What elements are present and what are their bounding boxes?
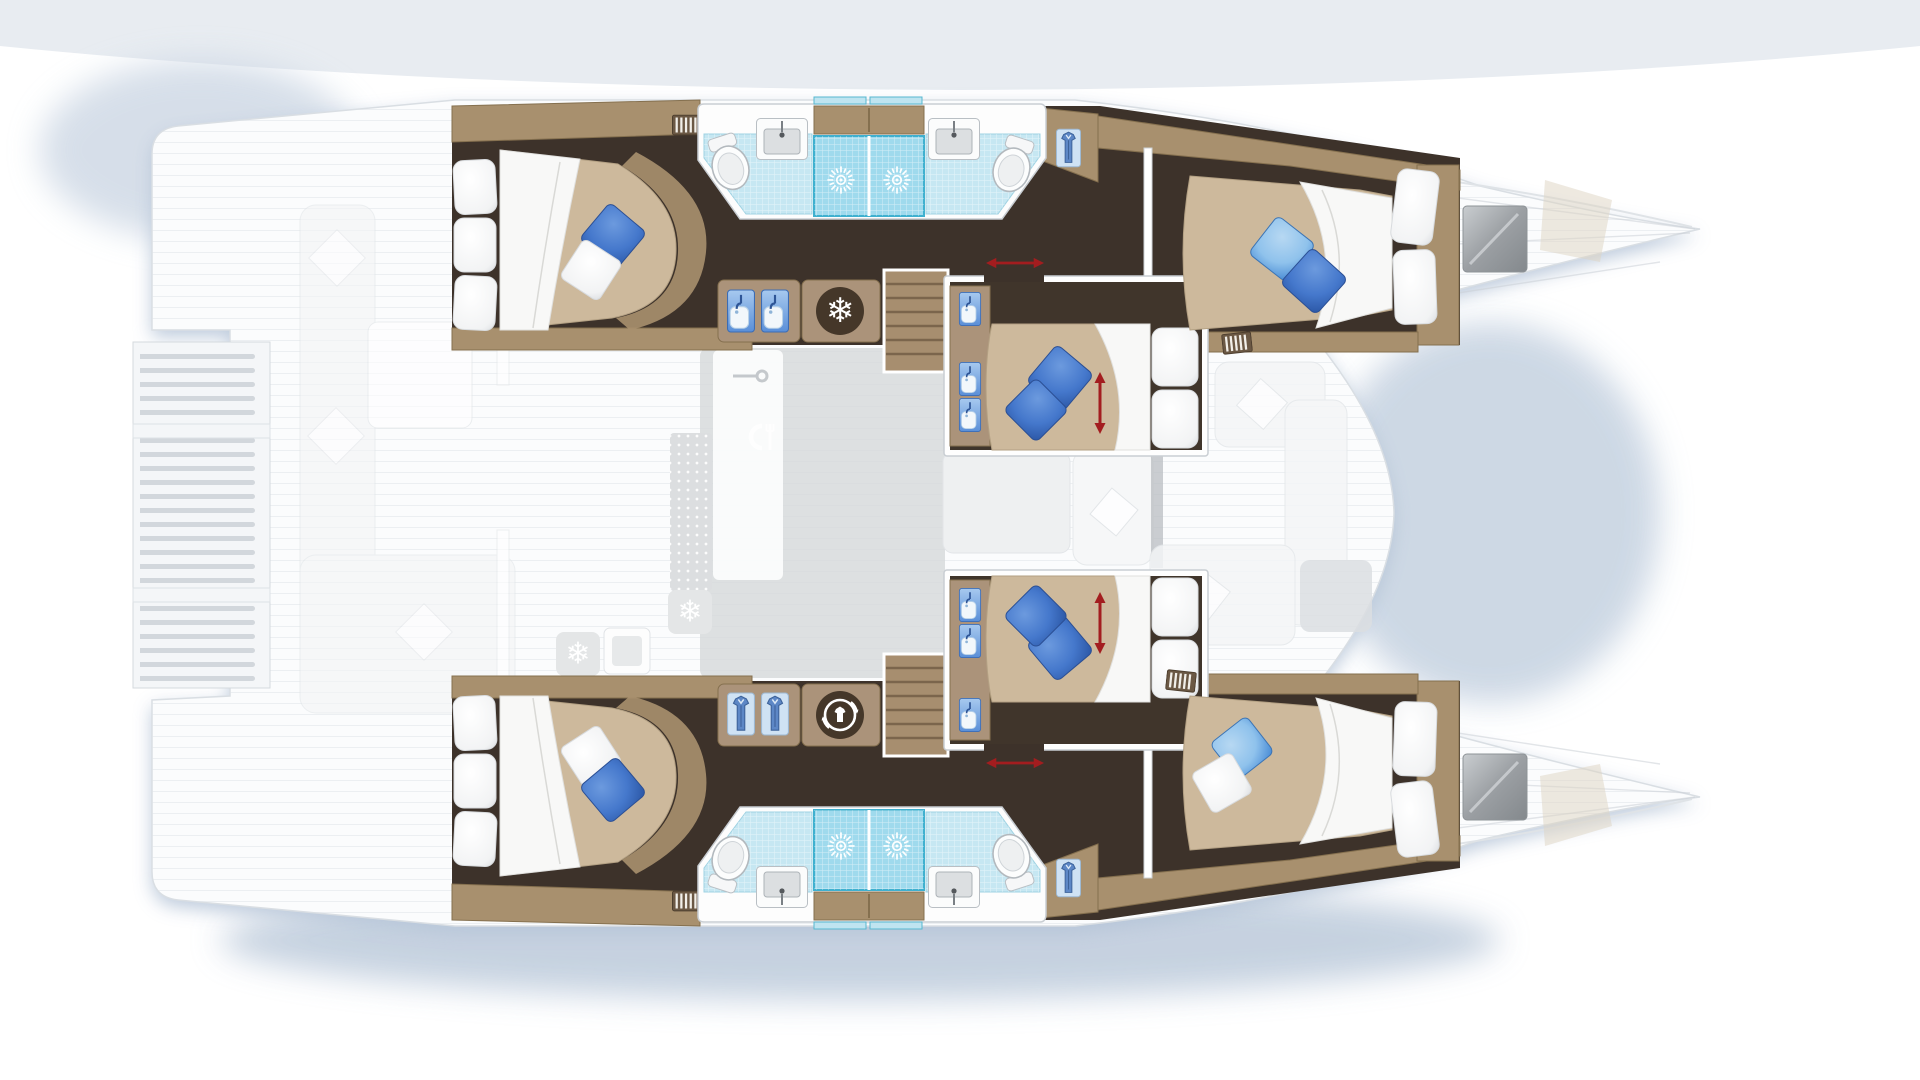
wood-band [452,100,700,142]
galley-sink-bowl [612,636,642,666]
washbasin-icon [757,119,808,160]
foredeck-cushion [1300,560,1372,632]
shower-spray-icon [883,166,910,193]
stairs-body [884,270,948,372]
hull-window [814,922,866,929]
upper-bathroom [698,97,1046,219]
freezer-icon-faded: ❄ [677,595,702,630]
catamaran-floor-plan: ❄ ❄ [0,0,1920,1080]
washbasin-icon [929,867,980,908]
upper-mid-cabin [944,258,1208,456]
shirt-icon [762,693,789,735]
door-gap [984,270,1044,282]
washbasin-icon [929,119,980,160]
swim-platform [133,342,270,688]
platform-rail [133,588,270,602]
stairs-lower [884,654,948,756]
vanity-basin-icon [959,588,980,621]
bolster-pillow [1393,701,1438,776]
freezer-icon-faded: ❄ [565,637,590,672]
lower-bathroom [698,807,1046,929]
washbasin-icon [757,867,808,908]
shower-spray-icon [827,166,854,193]
bolster-pillow [1152,578,1198,636]
hull-window [870,97,922,104]
bolster-pillows [453,695,498,867]
shower-spray-icon [827,832,854,859]
bolster-pillow [1152,390,1198,448]
wood-band [452,328,752,350]
wardrobe-shirt-icon [1056,129,1080,167]
wood-band [452,676,752,698]
galley-counter [713,350,783,580]
platform-slats [140,348,263,682]
blind-vent-icon [672,115,701,135]
vanity-basin-icon [959,398,980,431]
vanity-basin-icon [959,292,980,325]
lower-mid-cabin [944,570,1208,768]
bolster-pillow [1393,249,1438,324]
shirt-icon [728,693,755,735]
door-gap [984,744,1044,756]
basin-icon [728,290,755,332]
floor-plan-svg: ❄ ❄ [0,0,1920,1080]
freezer-icon: ❄ [826,291,855,331]
drainer-dots [670,433,712,591]
wood-band [452,884,700,926]
stairs-body [884,654,948,756]
blind-vent-icon [672,891,701,911]
hull-window [814,97,866,104]
stairs-upper [884,270,948,372]
hull-window [870,922,922,929]
bolster-pillows [453,159,498,331]
wardrobe-shirt-icon [1056,859,1080,897]
dinette-table [943,452,1070,553]
vanity-basin-icon [959,624,980,657]
vanity-basin-icon [959,362,980,395]
basin-icon [762,290,789,332]
bolster-pillow [1152,328,1198,386]
platform-rail [133,424,270,438]
bolster-pillow [1390,168,1441,247]
vanity-basin-icon [959,698,980,731]
shower-spray-icon [883,832,910,859]
blind-vent-icon [1166,670,1197,693]
bolster-pillow [1390,780,1441,859]
blind-vent-icon [1222,332,1253,355]
